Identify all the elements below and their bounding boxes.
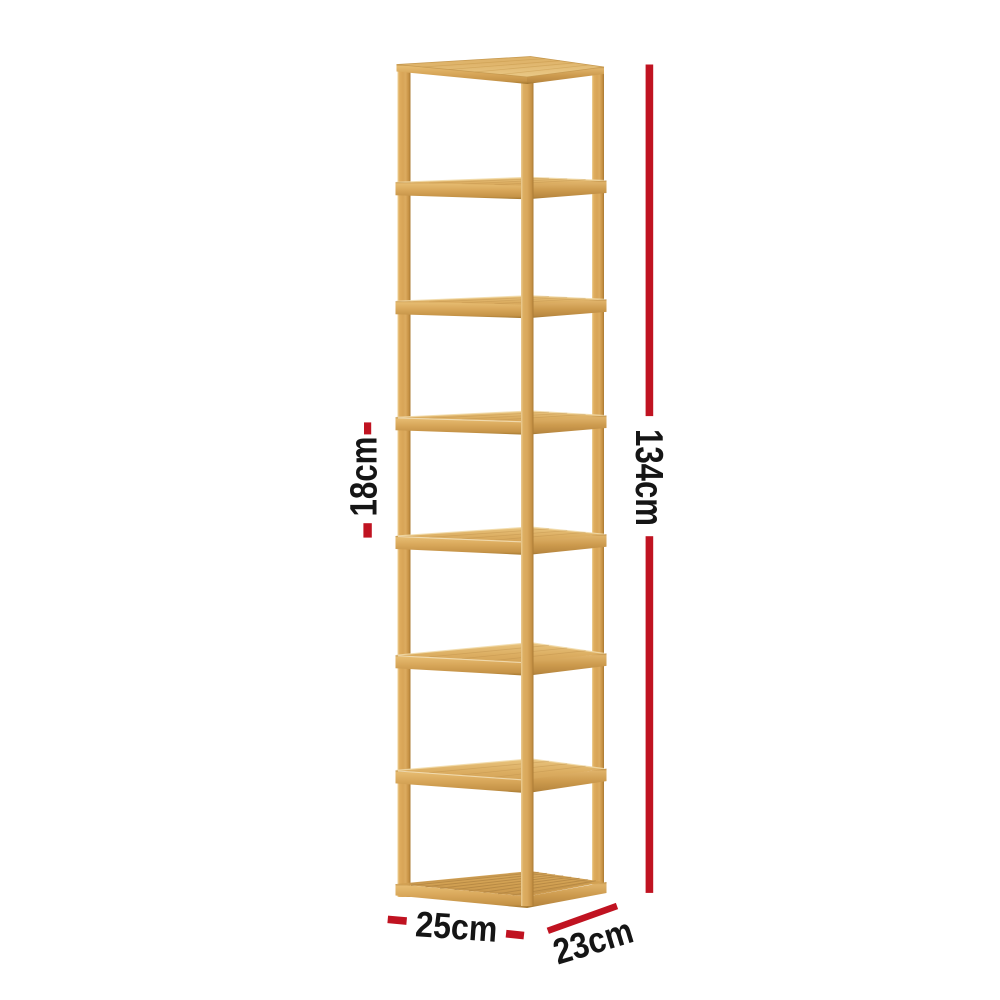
svg-text:18cm: 18cm: [344, 437, 386, 517]
svg-text:25cm: 25cm: [414, 903, 499, 950]
svg-text:134cm: 134cm: [627, 429, 670, 526]
